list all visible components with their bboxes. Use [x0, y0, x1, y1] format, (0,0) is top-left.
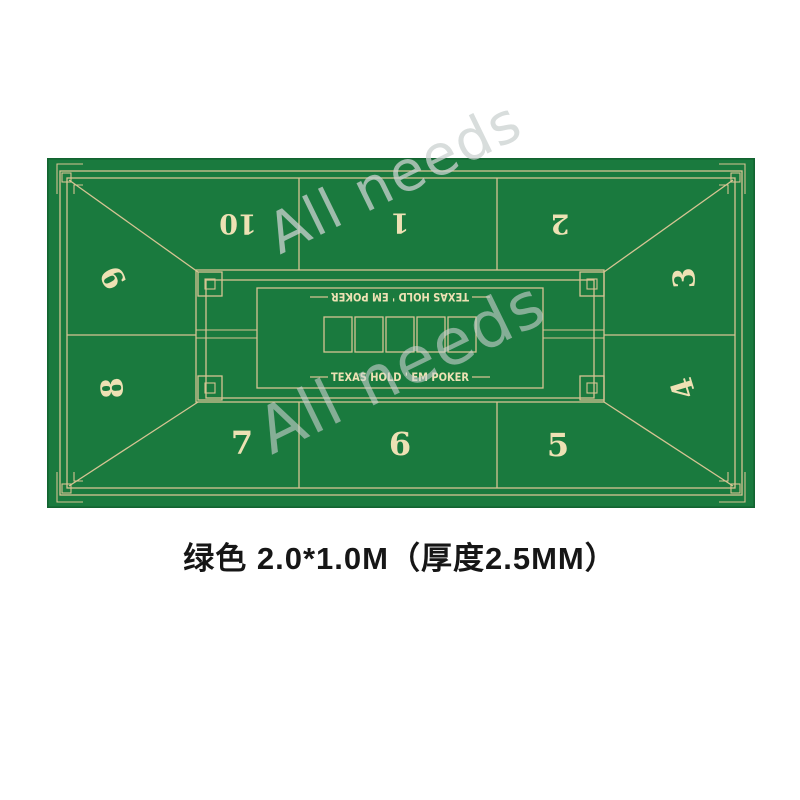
seat-number-1: 1: [391, 207, 410, 238]
seat-number-5: 5: [547, 426, 569, 464]
seat-number-3: 3: [667, 267, 703, 290]
product-caption: 绿色 2.0*1.0M（厚度2.5MM）: [0, 533, 800, 578]
brand-text-bottom: TEXAS HOLD ' EM POKER: [331, 370, 469, 384]
seat-number-7: 7: [231, 424, 253, 462]
brand-text-top: TEXAS HOLD ' EM POKER: [331, 290, 469, 304]
poker-mat-graphic: TEXAS HOLD ' EM POKER TEXAS HOLD ' EM PO…: [47, 158, 755, 508]
seat-number-6: 6: [389, 425, 411, 463]
brand-text-top-group: TEXAS HOLD ' EM POKER: [310, 290, 490, 304]
seat-number-2: 2: [551, 208, 570, 239]
brand-text-bottom-group: TEXAS HOLD ' EM POKER: [310, 370, 490, 384]
poker-mat-image: TEXAS HOLD ' EM POKER TEXAS HOLD ' EM PO…: [47, 158, 755, 508]
seat-number-10: 10: [219, 208, 257, 239]
seat-number-8: 8: [95, 376, 131, 399]
